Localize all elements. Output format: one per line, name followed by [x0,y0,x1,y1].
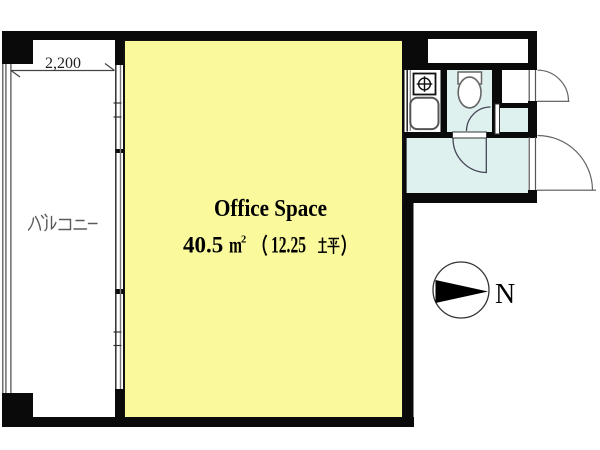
svg-text:12.25: 12.25 [271,233,306,258]
svg-text:Office Space: Office Space [214,196,327,222]
svg-text:N: N [495,279,515,310]
svg-text:40.5: 40.5 [183,233,223,258]
svg-text:2,200: 2,200 [45,55,81,72]
svg-text:2: 2 [241,235,246,246]
